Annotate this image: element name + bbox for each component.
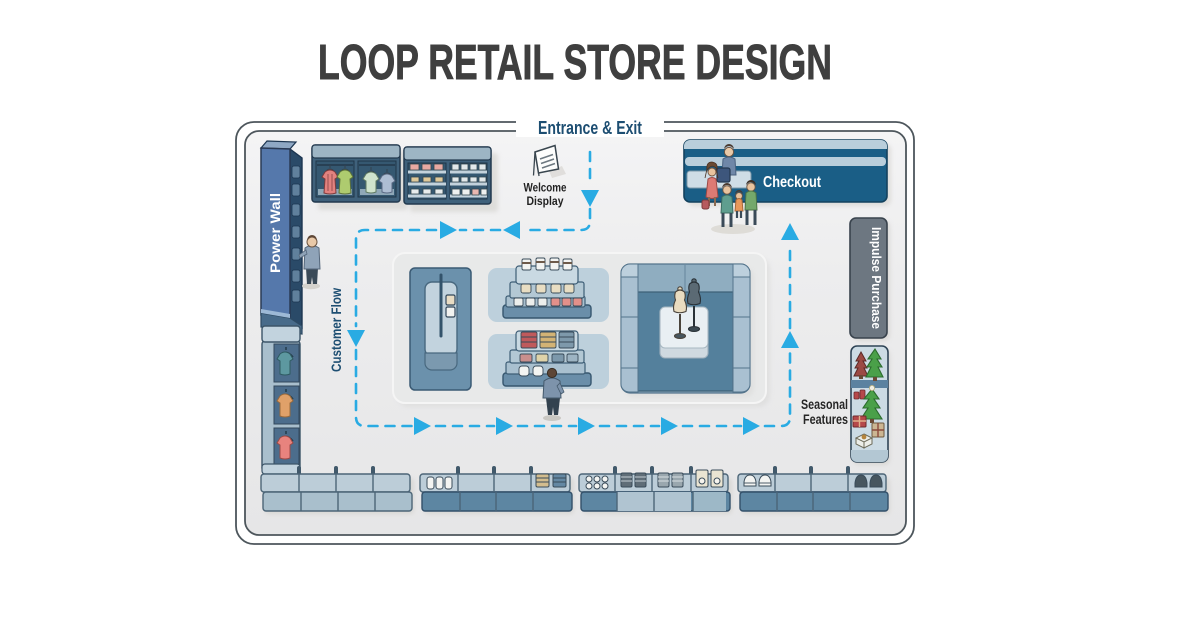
svg-text:Customer Flow: Customer Flow [328, 288, 344, 372]
svg-text:Seasonal: Seasonal [801, 397, 848, 412]
svg-text:Welcome: Welcome [524, 181, 567, 195]
svg-text:Power Wall: Power Wall [268, 193, 283, 273]
svg-text:LOOP RETAIL STORE DESIGN: LOOP RETAIL STORE DESIGN [318, 36, 832, 90]
svg-text:Features: Features [803, 412, 848, 427]
svg-text:Entrance & Exit: Entrance & Exit [538, 118, 642, 138]
svg-text:Impulse Purchase: Impulse Purchase [869, 227, 883, 329]
svg-text:Display: Display [527, 194, 564, 208]
svg-text:Checkout: Checkout [763, 174, 822, 191]
